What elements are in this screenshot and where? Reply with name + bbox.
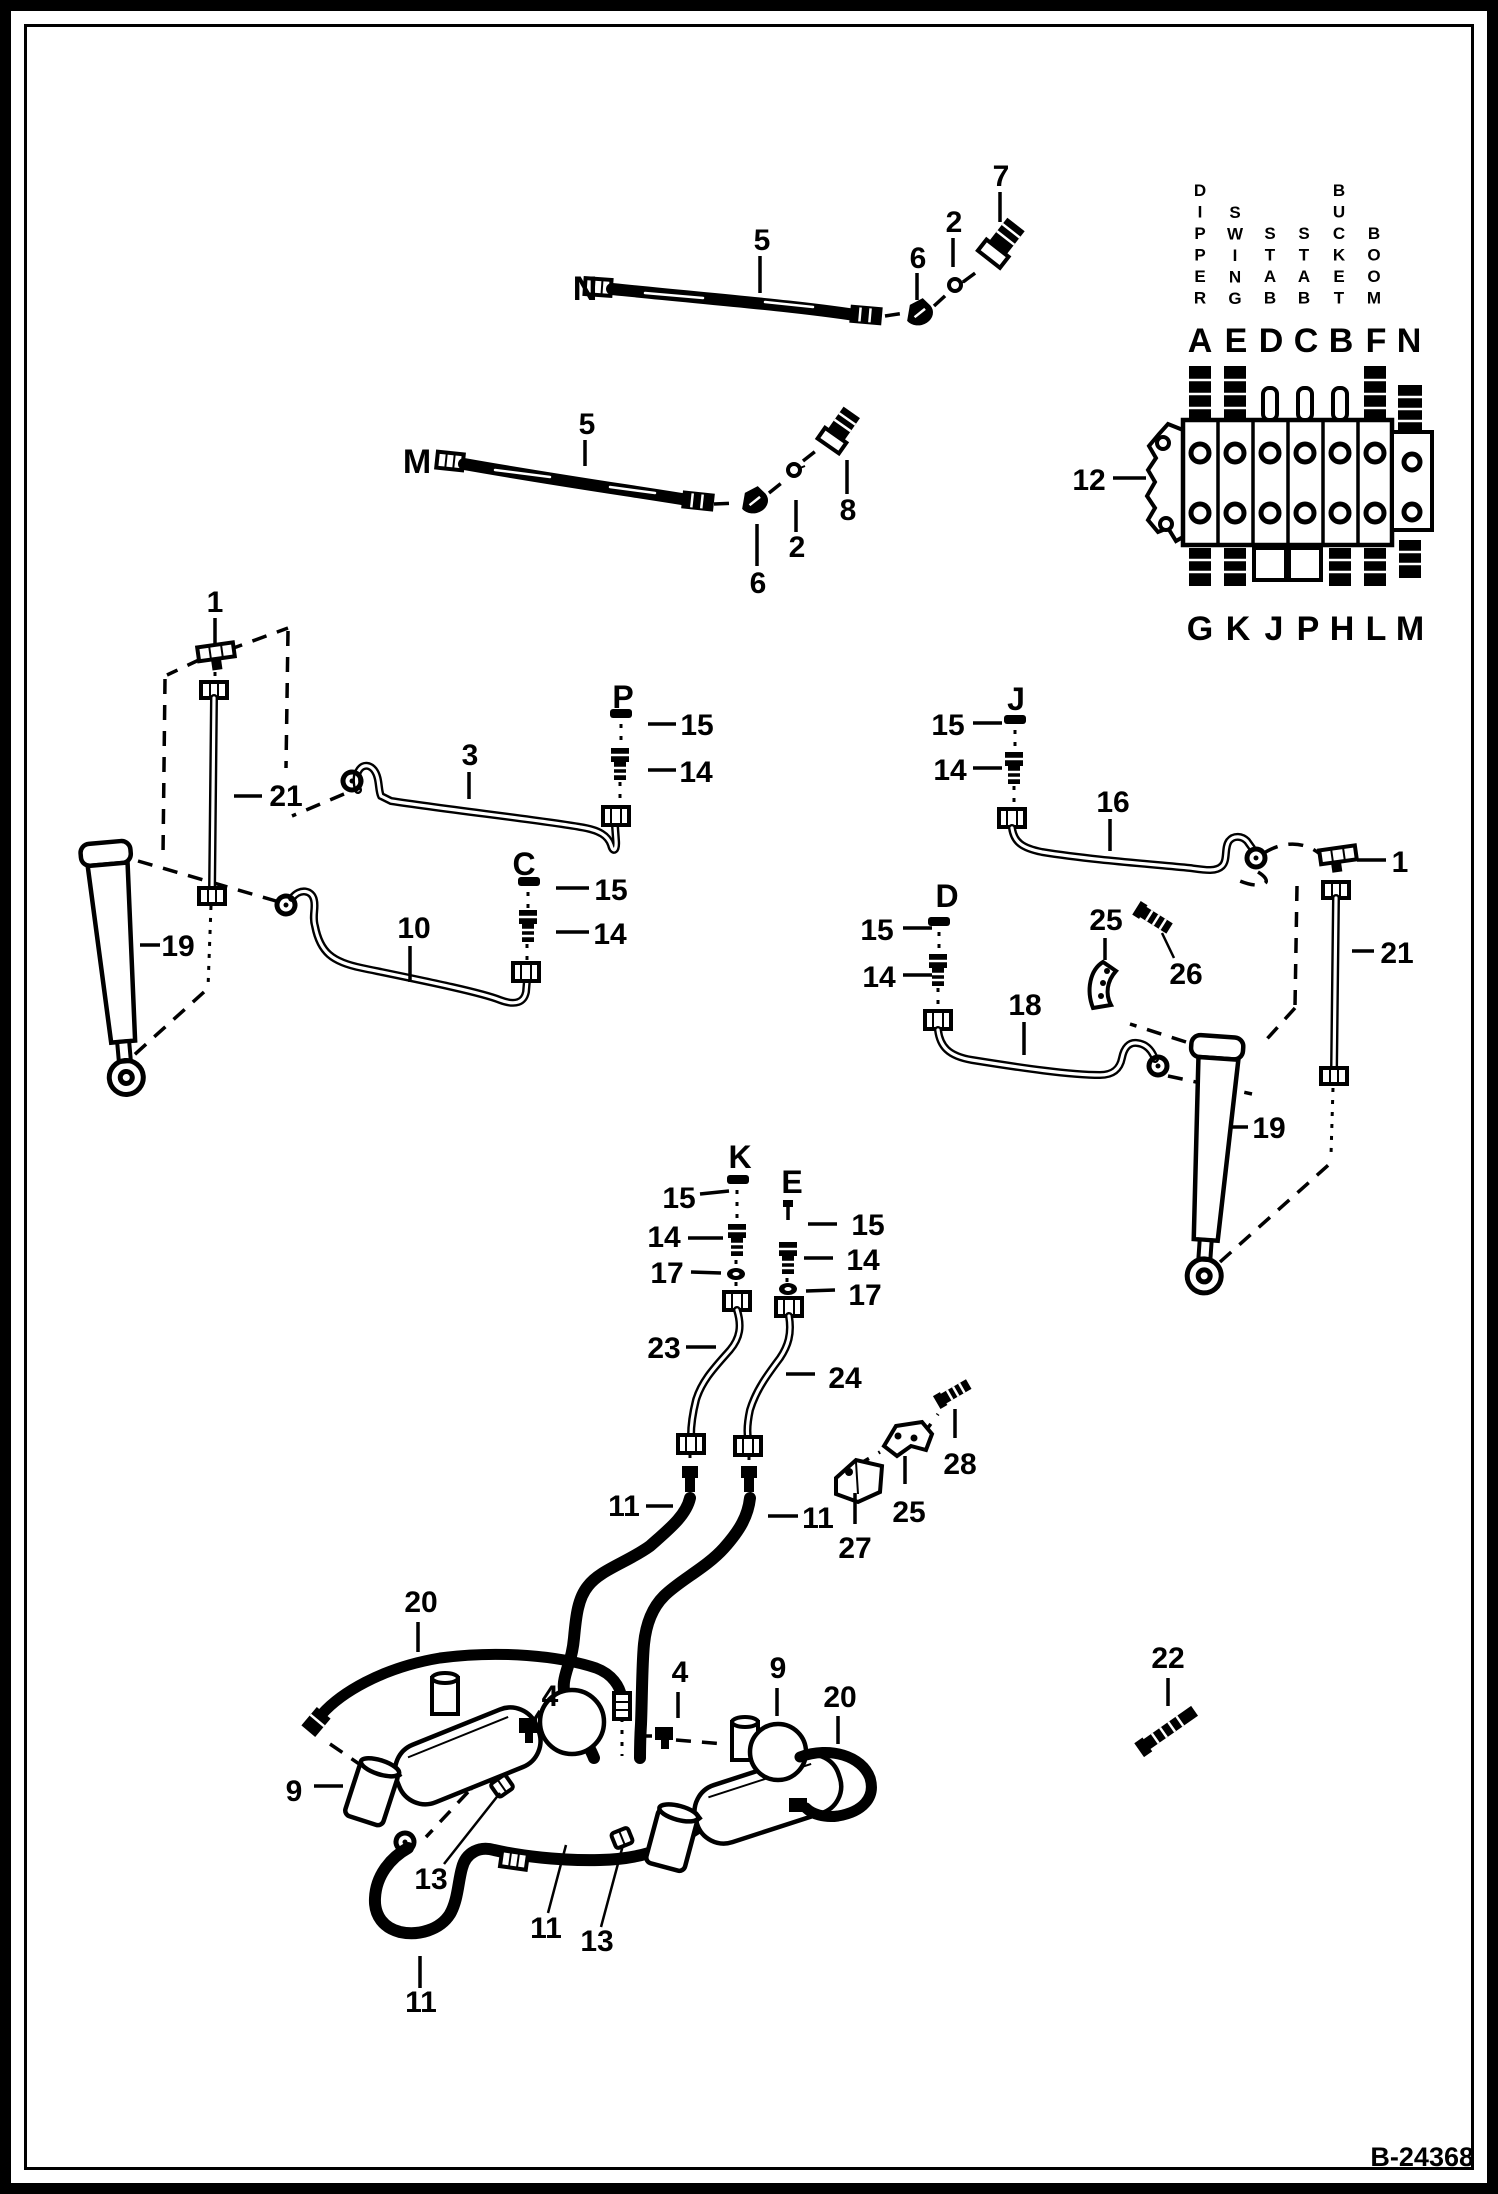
callout-14-17: 14 (679, 756, 713, 789)
ke-group (564, 1175, 973, 1758)
callout-1-11: 1 (207, 586, 224, 619)
callout-13-56: 13 (580, 1925, 613, 1958)
callout-8-9: 8 (840, 494, 857, 527)
tube-18-group (925, 901, 1174, 1075)
callout-11-54: 11 (405, 1986, 437, 2019)
valve-port-G: G (1187, 610, 1213, 648)
valve-fitting-n (1398, 385, 1422, 433)
callout-J-22: J (1007, 681, 1025, 717)
callout-10-21: 10 (397, 912, 430, 945)
callout-15-19: 15 (594, 874, 627, 907)
callout-P-15: P (612, 679, 633, 715)
callout-17-42: 17 (848, 1279, 881, 1312)
callout-9-58: 9 (770, 1652, 787, 1685)
valve-port-A: A (1188, 322, 1213, 360)
callout-C-18: C (512, 846, 535, 882)
ring-2-lower (788, 464, 805, 476)
callout-25-46: 25 (892, 1496, 925, 1529)
callout-4-51: 4 (542, 1680, 559, 1713)
bolt-28 (933, 1378, 973, 1409)
callout-28-45: 28 (943, 1448, 976, 1481)
cylinder-assembly-right (645, 1717, 849, 1872)
callout-D-26: D (935, 878, 958, 914)
valve-port-F: F (1366, 322, 1387, 360)
elbow-nut-p (603, 807, 629, 825)
bolt-15-e (783, 1200, 793, 1220)
connector-11-right-top (741, 1466, 757, 1492)
callout-19-13: 19 (161, 930, 194, 963)
elbow-4-right (655, 1727, 673, 1749)
callout-4-57: 4 (672, 1656, 689, 1689)
valve-section-name-stab-3: STAB (1298, 224, 1310, 308)
connector-14-c (519, 910, 537, 942)
bolt-22 (1134, 1704, 1199, 1757)
callout-6-2: 6 (910, 242, 927, 275)
right-cylinder-group (1174, 845, 1358, 1294)
valve-port-P: P (1297, 610, 1320, 648)
callout-11-55: 11 (530, 1912, 562, 1945)
valve-section-name-bucket-4: BUCKET (1333, 181, 1346, 308)
callout-11-49: 11 (802, 1502, 834, 1535)
callout-15-37: 15 (662, 1182, 695, 1215)
cylinder-19-left (80, 840, 152, 1096)
diagram-canvas: DIPPERSWINGSTABSTABBUCKETBOOM AEDCBFNGKJ… (0, 0, 1498, 2194)
hose-5-lower (436, 405, 862, 516)
hose-20-right-elbow (789, 1798, 807, 1812)
fitting-8 (818, 405, 863, 453)
plug-15-d (928, 917, 950, 926)
callout-1-32: 1 (1392, 846, 1409, 879)
callout-22-60: 22 (1151, 1642, 1184, 1675)
callout-7-0: 7 (993, 160, 1010, 193)
callout-14-41: 14 (846, 1244, 880, 1277)
figure-number: B-24368 (1370, 2142, 1474, 2172)
left-cylinder-group (80, 642, 237, 1096)
callout-14-28: 14 (862, 961, 896, 994)
valve-port-E: E (1225, 322, 1248, 360)
callout-K-35: K (728, 1139, 751, 1175)
valve-section-name-stab-2: STAB (1264, 224, 1276, 308)
callout-6-8: 6 (750, 567, 767, 600)
callout-21-12: 21 (269, 780, 302, 813)
elbow-6-upper (903, 297, 935, 328)
callout-14-38: 14 (647, 1221, 681, 1254)
callout-27-47: 27 (838, 1532, 871, 1565)
valve-section-name-swing-1: SWING (1227, 203, 1244, 308)
callout-16-25: 16 (1096, 786, 1129, 819)
valve-port-M: M (1396, 610, 1424, 648)
cylinder-assembly-left (344, 1673, 604, 1827)
connector-14-j (1005, 752, 1023, 784)
connector-14-d (929, 954, 947, 986)
valve-port-K: K (1226, 610, 1251, 648)
callout-15-23: 15 (931, 709, 964, 742)
connector-14-k (728, 1224, 746, 1256)
cup-9-right (645, 1801, 700, 1872)
washer-17-k (727, 1268, 745, 1280)
valve-port-C: C (1294, 322, 1319, 360)
valve-section-name-dipper-0: DIPPER (1194, 181, 1206, 308)
parts-diagram-page: DIPPERSWINGSTABSTABBUCKETBOOM AEDCBFNGKJ… (0, 0, 1498, 2194)
callout-12-10: 12 (1072, 464, 1105, 497)
callout-5-3: 5 (754, 224, 771, 257)
callout-3-14: 3 (462, 739, 479, 772)
callout-17-39: 17 (650, 1257, 683, 1290)
inner-border (26, 26, 1473, 2169)
callout-2-7: 2 (789, 531, 806, 564)
bolt-26 (1132, 901, 1174, 935)
valve-port-H: H (1330, 610, 1355, 648)
callout-5-5: 5 (579, 408, 596, 441)
connector-14-e (779, 1242, 797, 1274)
callout-18-29: 18 (1008, 989, 1041, 1022)
callout-19-34: 19 (1252, 1112, 1285, 1145)
valve-section-names: DIPPERSWINGSTABSTABBUCKETBOOM (1194, 181, 1381, 308)
fitting-7 (978, 216, 1027, 268)
callout-20-59: 20 (823, 1681, 856, 1714)
bracket-27 (836, 1460, 882, 1502)
cylinder-19-right (1174, 1034, 1244, 1294)
valve-port-N: N (1397, 322, 1422, 360)
callout-2-1: 2 (946, 206, 963, 239)
valve-section-name-boom-5: BOOM (1367, 224, 1381, 308)
callout-11-48: 11 (608, 1490, 640, 1523)
callout-15-16: 15 (680, 709, 713, 742)
valve-port-J: J (1265, 610, 1284, 648)
callout-23-43: 23 (647, 1332, 680, 1365)
callout-13-53: 13 (414, 1863, 447, 1896)
callout-20-50: 20 (404, 1586, 437, 1619)
callout-15-40: 15 (851, 1209, 884, 1242)
tube-3-group (340, 709, 632, 850)
cup-9-left (344, 1754, 402, 1826)
tee-fitting-1-right (1319, 845, 1358, 874)
valve-port-L: L (1366, 610, 1387, 648)
control-valve (1147, 366, 1432, 586)
callout-15-27: 15 (860, 914, 893, 947)
callout-E-36: E (781, 1164, 802, 1200)
clamp-25-lower (884, 1422, 932, 1456)
tube-16-group (999, 715, 1265, 870)
callout-9-52: 9 (286, 1775, 303, 1808)
tee-fitting-1-left (197, 642, 236, 672)
callout-25-30: 25 (1089, 904, 1122, 937)
connector-11-left-top (682, 1466, 698, 1492)
callout-N-4: N (573, 270, 598, 308)
connector-14-p (611, 748, 629, 780)
valve-port-D: D (1259, 322, 1284, 360)
plug-15-k (727, 1175, 749, 1184)
elbow-nut-c (513, 963, 539, 981)
washer-17-e (779, 1283, 797, 1295)
callout-26-31: 26 (1169, 958, 1202, 991)
callout-14-20: 14 (593, 918, 627, 951)
valve-outlet-block (1392, 432, 1432, 530)
callout-24-44: 24 (828, 1362, 862, 1395)
elbow-6-lower (738, 485, 770, 516)
callout-M-6: M (403, 443, 431, 481)
valve-port-B: B (1329, 322, 1354, 360)
callout-21-33: 21 (1380, 937, 1413, 970)
callout-14-24: 14 (933, 754, 967, 787)
